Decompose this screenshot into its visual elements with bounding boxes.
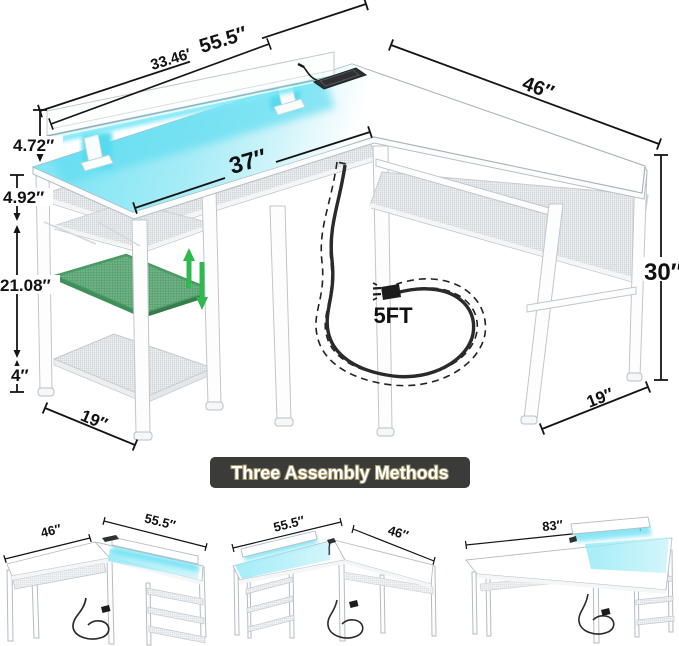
svg-text:5FT: 5FT (373, 303, 413, 328)
svg-text:4.72′′: 4.72′′ (13, 136, 54, 155)
svg-text:21.08′′: 21.08′′ (0, 276, 51, 295)
svg-text:30′′: 30′′ (644, 259, 679, 286)
svg-text:4′′: 4′′ (11, 366, 29, 385)
svg-text:Three Assembly Methods: Three Assembly Methods (231, 463, 448, 483)
svg-text:83′′: 83′′ (541, 517, 563, 534)
svg-text:4.92′′: 4.92′′ (3, 188, 44, 207)
